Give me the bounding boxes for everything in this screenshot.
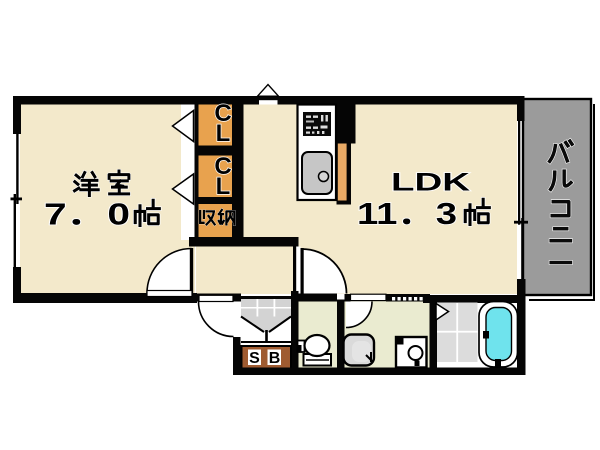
svg-text:11．3: 11．3 (357, 196, 457, 231)
svg-text:LDK: LDK (391, 169, 470, 197)
svg-text:B: B (269, 350, 281, 367)
svg-text:L: L (216, 173, 231, 200)
svg-text:L: L (216, 120, 231, 147)
svg-text:7．0: 7．0 (44, 197, 130, 232)
svg-text:S: S (249, 350, 260, 367)
